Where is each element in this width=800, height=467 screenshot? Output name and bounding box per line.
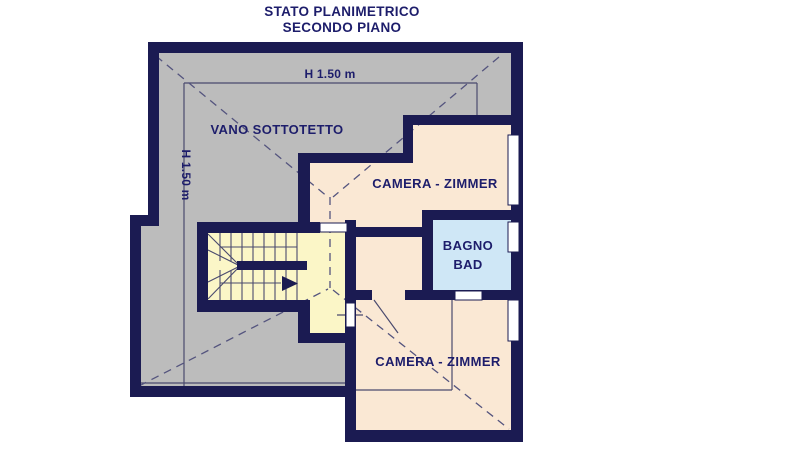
wall-stair-bottom <box>197 300 310 312</box>
wall-corridor-bottom-a <box>352 290 372 300</box>
wall-center-vertical <box>345 220 356 442</box>
wall-bedroom-upper-left <box>298 153 310 233</box>
bathroom-floor <box>427 215 511 295</box>
wall-stair-left <box>197 222 208 312</box>
bedroom-upper-label: CAMERA - ZIMMER <box>372 176 498 191</box>
floor-plan-page: STATO PLANIMETRICO SECONDO PIANO H 1.50 … <box>0 0 800 467</box>
attic-label: VANO SOTTOTETTO <box>210 122 343 137</box>
stair-landing-floor <box>307 230 348 338</box>
wall-stair-stringer <box>237 261 307 270</box>
bedroom-lower-label: CAMERA - ZIMMER <box>375 354 501 369</box>
height-label-top: H 1.50 m <box>305 67 356 81</box>
outside-notch <box>130 42 148 215</box>
bathroom-label-line1: BAGNO <box>443 238 493 253</box>
plan-title-line1: STATO PLANIMETRICO <box>264 4 419 19</box>
wall-top <box>148 42 523 53</box>
bathroom-label-line2: BAD <box>453 257 482 272</box>
door-landing-to-lower <box>346 303 355 327</box>
wall-bottom-left <box>130 386 356 397</box>
floor-plan-drawing: STATO PLANIMETRICO SECONDO PIANO H 1.50 … <box>0 0 800 467</box>
plan-title-line2: SECONDO PIANO <box>283 20 402 35</box>
corridor-floor <box>352 230 433 298</box>
door-bathroom <box>455 291 482 300</box>
height-label-left: H 1.50 m <box>179 150 193 201</box>
wall-bedroom-upper-top <box>403 115 523 125</box>
wall-landing-bottom <box>298 333 356 343</box>
wall-left-upper <box>148 42 159 226</box>
wall-bedroom-upper-step-h <box>298 153 413 163</box>
window-bedroom-lower <box>508 300 519 341</box>
wall-left-lower <box>130 215 141 397</box>
wall-bottom-right <box>345 430 523 442</box>
wall-corridor-top <box>352 227 433 237</box>
window-bathroom <box>508 222 519 252</box>
wall-bathroom-left <box>422 210 433 300</box>
wall-bathroom-top <box>422 210 523 220</box>
window-bedroom-upper <box>508 135 519 205</box>
door-landing-to-bedroom <box>320 223 347 232</box>
